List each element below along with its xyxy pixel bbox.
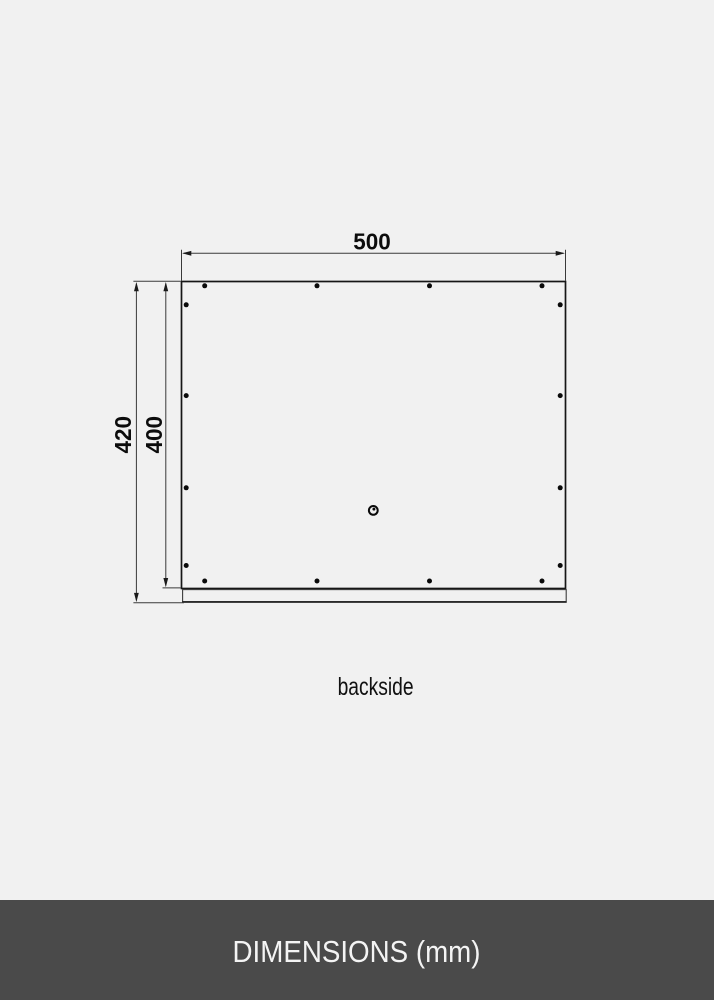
svg-text:420: 420 bbox=[110, 416, 136, 454]
svg-text:backside: backside bbox=[338, 673, 414, 701]
svg-text:400: 400 bbox=[141, 416, 167, 454]
svg-text:DIMENSIONS (mm): DIMENSIONS (mm) bbox=[233, 934, 481, 969]
svg-text:500: 500 bbox=[353, 228, 391, 254]
